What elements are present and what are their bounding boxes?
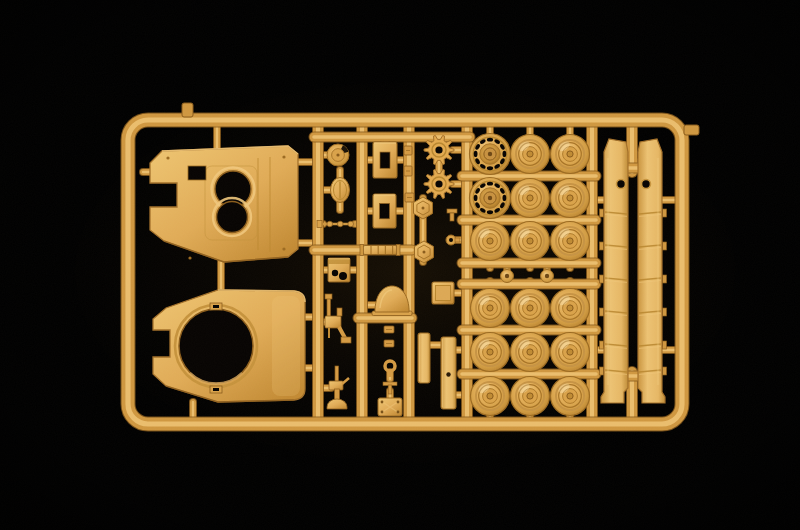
vignette: [0, 0, 800, 530]
photo-stage: [0, 0, 800, 530]
sprue-photo: [0, 0, 800, 530]
